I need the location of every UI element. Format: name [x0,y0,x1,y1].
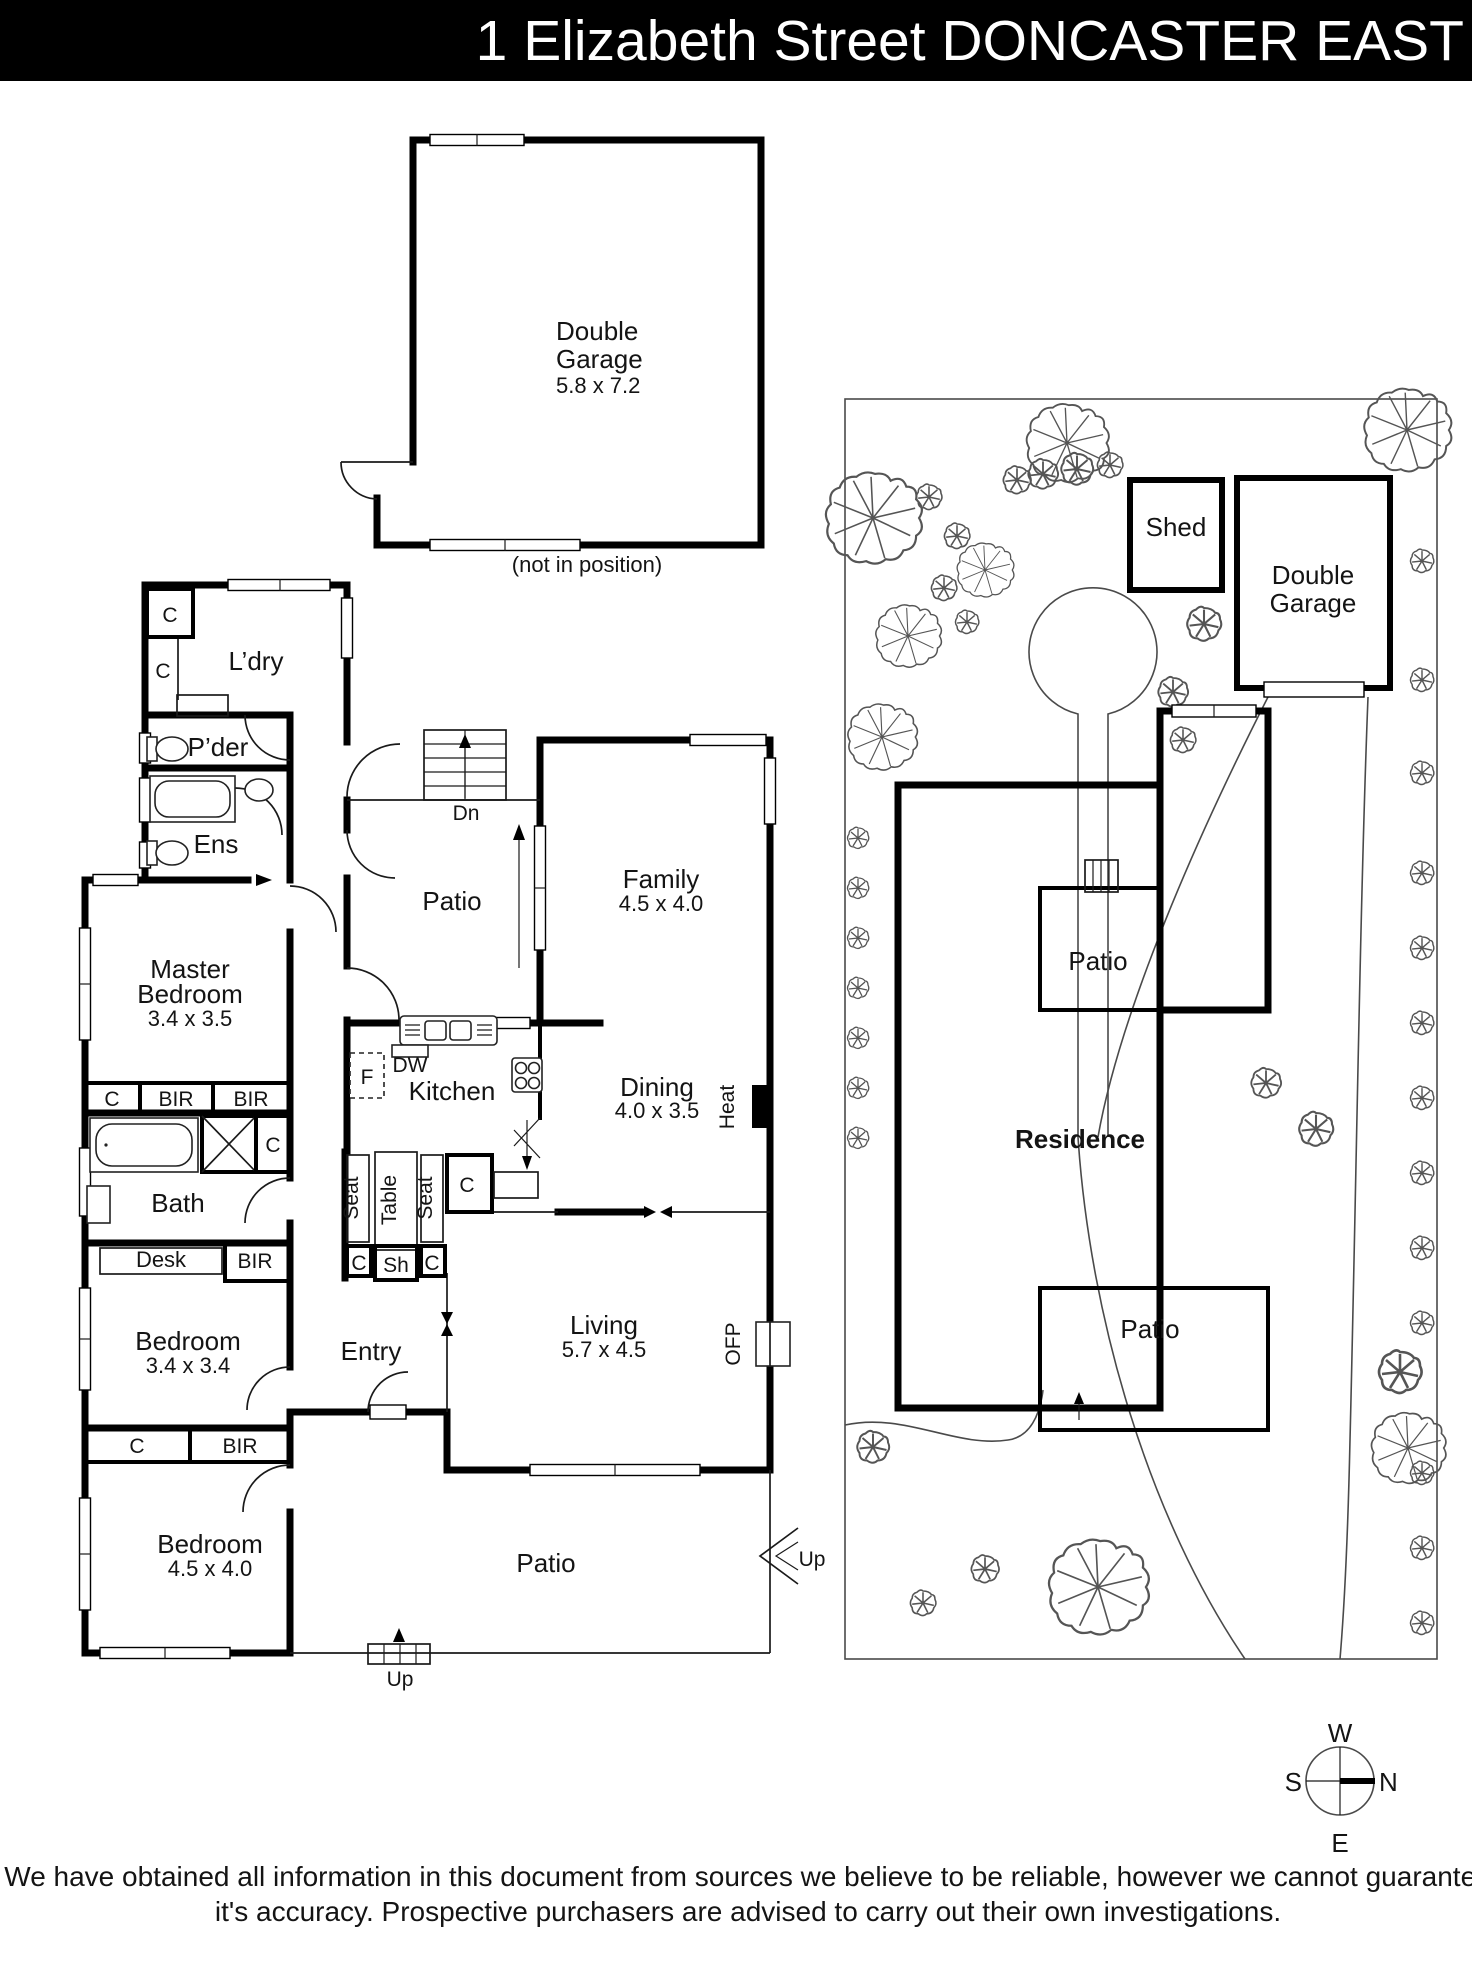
label-bir-master1: BIR [158,1088,193,1111]
label-bedroom3-dims: 4.5 x 4.0 [168,1556,252,1581]
label-family-dims: 4.5 x 4.0 [619,891,703,916]
label-seat-1: Seat [340,1176,363,1219]
label-laundry: L’dry [229,646,284,676]
compass-south: S [1285,1767,1302,1797]
heater-unit [752,1085,769,1128]
label-c-bath: C [265,1134,280,1157]
label-stairs-dn: Dn [453,802,480,825]
label-bedroom2: Bedroom [135,1326,241,1356]
label-site-patio-upper: Patio [1068,946,1127,976]
label-living: Living [570,1310,638,1340]
label-c-nook1: C [351,1252,366,1275]
label-up-side: Up [799,1548,826,1571]
garage-plan: Double Garage 5.8 x 7.2 (not in position… [341,135,761,578]
compass-east: E [1331,1828,1348,1858]
label-c-master: C [104,1088,119,1111]
label-bedroom2-dims: 3.4 x 3.4 [146,1353,230,1378]
toilet-icon [147,737,188,761]
label-ofp: OFP [722,1322,745,1365]
garage-dims: 5.8 x 7.2 [556,373,640,398]
label-heat: Heat [716,1085,739,1130]
label-table: Table [378,1175,401,1225]
label-c-dining: C [459,1174,474,1197]
label-sh-nook: Sh [383,1254,409,1277]
front-door-sill [370,1405,406,1419]
label-site-residence: Residence [1015,1124,1145,1154]
label-site-shed: Shed [1146,512,1207,542]
label-site-patio-lower: Patio [1120,1314,1179,1344]
label-bedroom3: Bedroom [157,1529,263,1559]
up-steps-side [760,1528,798,1584]
label-c-nook2: C [424,1252,439,1275]
patio-arrow [513,824,525,968]
label-family: Family [623,864,700,894]
site-plan: Shed Double Garage [826,389,1451,1659]
site-garage-door [1264,682,1364,697]
label-c-bed3: C [129,1435,144,1458]
label-entry: Entry [341,1336,402,1366]
label-c-laundry1: C [162,604,177,627]
up-steps-bottom [368,1628,430,1664]
ensuite-bathtub-icon [150,776,235,822]
label-patio-lower: Patio [516,1548,575,1578]
label-dishwasher: DW [393,1054,428,1077]
lawn-path-1 [845,1390,1043,1441]
kitchen-sink-icon [400,1016,497,1045]
lawn-path-4 [1098,697,1268,1137]
site-residence: Patio Residence Patio [898,705,1268,1430]
compass-west: W [1328,1718,1353,1748]
label-master-dims: 3.4 x 3.5 [148,1006,232,1031]
stairs-down [424,730,506,800]
label-site-garage-1: Double [1272,560,1354,590]
house-plan: L’dry P’der Ens Master Bedroom 3.4 x 3.5… [80,580,826,1692]
label-fridge: F [361,1066,374,1089]
label-site-garage-2: Garage [1270,588,1357,618]
label-up-bottom: Up [387,1668,414,1691]
label-living-dims: 5.7 x 4.5 [562,1337,646,1362]
label-bir-master2: BIR [233,1088,268,1111]
label-c-laundry2: C [155,660,170,683]
basin-icon [245,779,273,801]
disclaimer: We have obtained all information in this… [4,1861,1472,1927]
garage-label-line2: Garage [556,344,643,374]
label-ensuite: Ens [194,829,239,859]
toilet-icon-2 [147,841,188,865]
floorplan-canvas: Double Garage 5.8 x 7.2 (not in position… [0,0,1472,1961]
floorplan-page: 1 Elizabeth Street DONCASTER EAST Double… [0,0,1472,1961]
label-powder: P’der [188,732,249,762]
compass-north: N [1379,1767,1398,1797]
lawn-path-3 [1340,697,1368,1659]
compass: W E S N [1285,1718,1398,1858]
bathtub-icon [90,1118,198,1172]
stove-icon [512,1058,542,1092]
kitchen-door [514,1118,540,1170]
label-master-2: Bedroom [137,979,243,1009]
dining-bench [494,1172,538,1198]
label-dining-dims: 4.0 x 3.5 [615,1098,699,1123]
fireplace-icon [756,1322,790,1366]
label-bath: Bath [151,1188,205,1218]
label-desk: Desk [136,1247,187,1272]
label-kitchen: Kitchen [409,1076,496,1106]
shower-icon [202,1116,256,1172]
disclaimer-line2: it's accuracy. Prospective purchasers ar… [215,1896,1281,1927]
label-seat-2: Seat [414,1176,437,1219]
label-bir-bed3: BIR [222,1435,257,1458]
garage-door-arc [341,462,377,499]
label-bir-desk: BIR [237,1250,272,1273]
disclaimer-line1: We have obtained all information in this… [4,1861,1472,1892]
garage-label-line1: Double [556,316,638,346]
garage-note: (not in position) [512,552,662,577]
label-patio-upper: Patio [422,886,481,916]
bath-vanity [87,1186,110,1223]
